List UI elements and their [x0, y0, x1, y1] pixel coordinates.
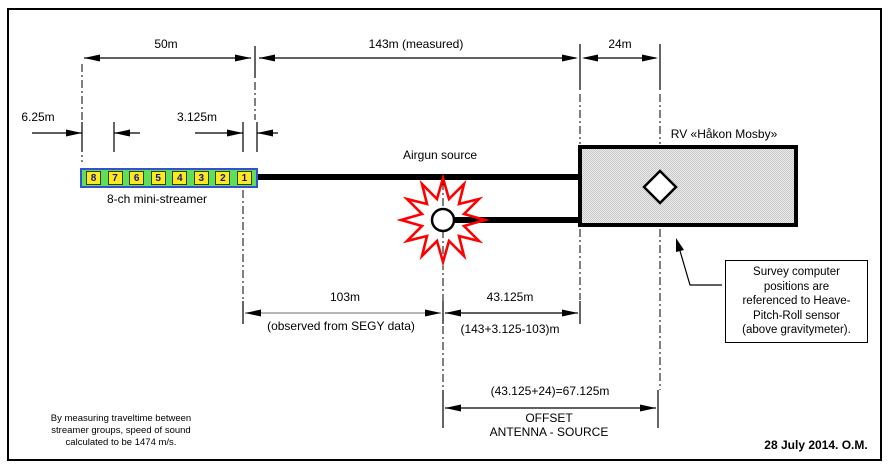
note-line: calculated to be 1474 m/s. — [51, 437, 191, 449]
dim-6-25m-label: 6.25m — [21, 111, 54, 124]
airgun-source-label: Airgun source — [403, 149, 477, 162]
extension-ticks — [82, 44, 660, 428]
channel-box-6: 6 — [129, 171, 144, 185]
channel-box-2: 2 — [215, 171, 230, 185]
note-line: streamer groups, speed of sound — [51, 425, 191, 437]
callout-box: Survey computer positions are referenced… — [725, 260, 868, 343]
dim-103m-label: 103m — [330, 291, 360, 304]
dim-24m-label: 24m — [608, 38, 631, 51]
date-label: 28 July 2014. O.M. — [764, 438, 867, 452]
dim-43-125m-label: 43.125m — [487, 291, 534, 304]
dim-50m-label: 50m — [154, 38, 177, 51]
channel-box-3: 3 — [194, 171, 209, 185]
diagram-canvas — [0, 0, 893, 472]
diagram-page: 50m 143m (measured) 24m 6.25m 3.125m 103… — [0, 0, 893, 472]
callout-arrow — [678, 244, 722, 285]
callout-line: positions are — [726, 280, 867, 295]
dim-offset-sum-label: (43.125+24)=67.125m — [491, 385, 610, 398]
dimension-lines — [32, 58, 656, 408]
vessel-name-label: RV «Håkon Mosby» — [671, 128, 778, 141]
offset-subject-label: ANTENNA - SOURCE — [490, 426, 609, 439]
callout-arrowhead — [676, 238, 684, 252]
channel-box-7: 7 — [108, 171, 123, 185]
dimension-arrowheads — [66, 55, 658, 412]
dim-43-125m-calc: (143+3.125-103)m — [460, 323, 559, 336]
streamer-bar: 8 7 6 5 4 3 2 1 — [80, 168, 258, 188]
callout-line: referenced to Heave- — [726, 294, 867, 309]
sound-speed-note: By measuring traveltime between streamer… — [51, 413, 191, 449]
callout-line: Pitch-Roll sensor — [726, 309, 867, 324]
note-line: By measuring traveltime between — [51, 413, 191, 425]
airgun-source-point — [432, 209, 454, 231]
callout-line: (above gravitymeter). — [726, 323, 867, 338]
channel-box-1: 1 — [237, 171, 252, 185]
dim-143m-label: 143m (measured) — [369, 38, 464, 51]
streamer-label: 8-ch mini-streamer — [107, 193, 207, 206]
channel-box-5: 5 — [151, 171, 166, 185]
offset-word-label: OFFSET — [525, 412, 572, 425]
dim-3-125m-label: 3.125m — [177, 111, 217, 124]
callout-line: Survey computer — [726, 265, 867, 280]
reference-lines — [82, 64, 660, 390]
ship-hull — [580, 147, 796, 225]
channel-box-8: 8 — [86, 171, 101, 185]
channel-box-4: 4 — [172, 171, 187, 185]
dim-103m-note: (observed from SEGY data) — [267, 320, 415, 333]
